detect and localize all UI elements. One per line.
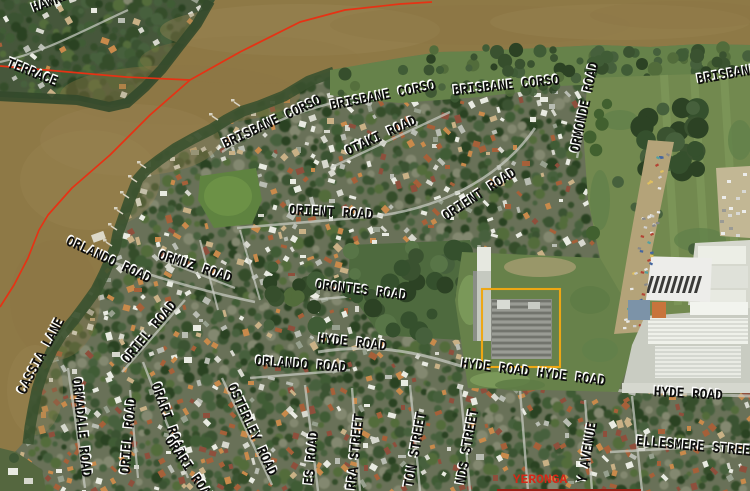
svg-text:YERONGA: YERONGA (513, 472, 568, 487)
svg-text:HYDE ROAD: HYDE ROAD (653, 384, 723, 405)
